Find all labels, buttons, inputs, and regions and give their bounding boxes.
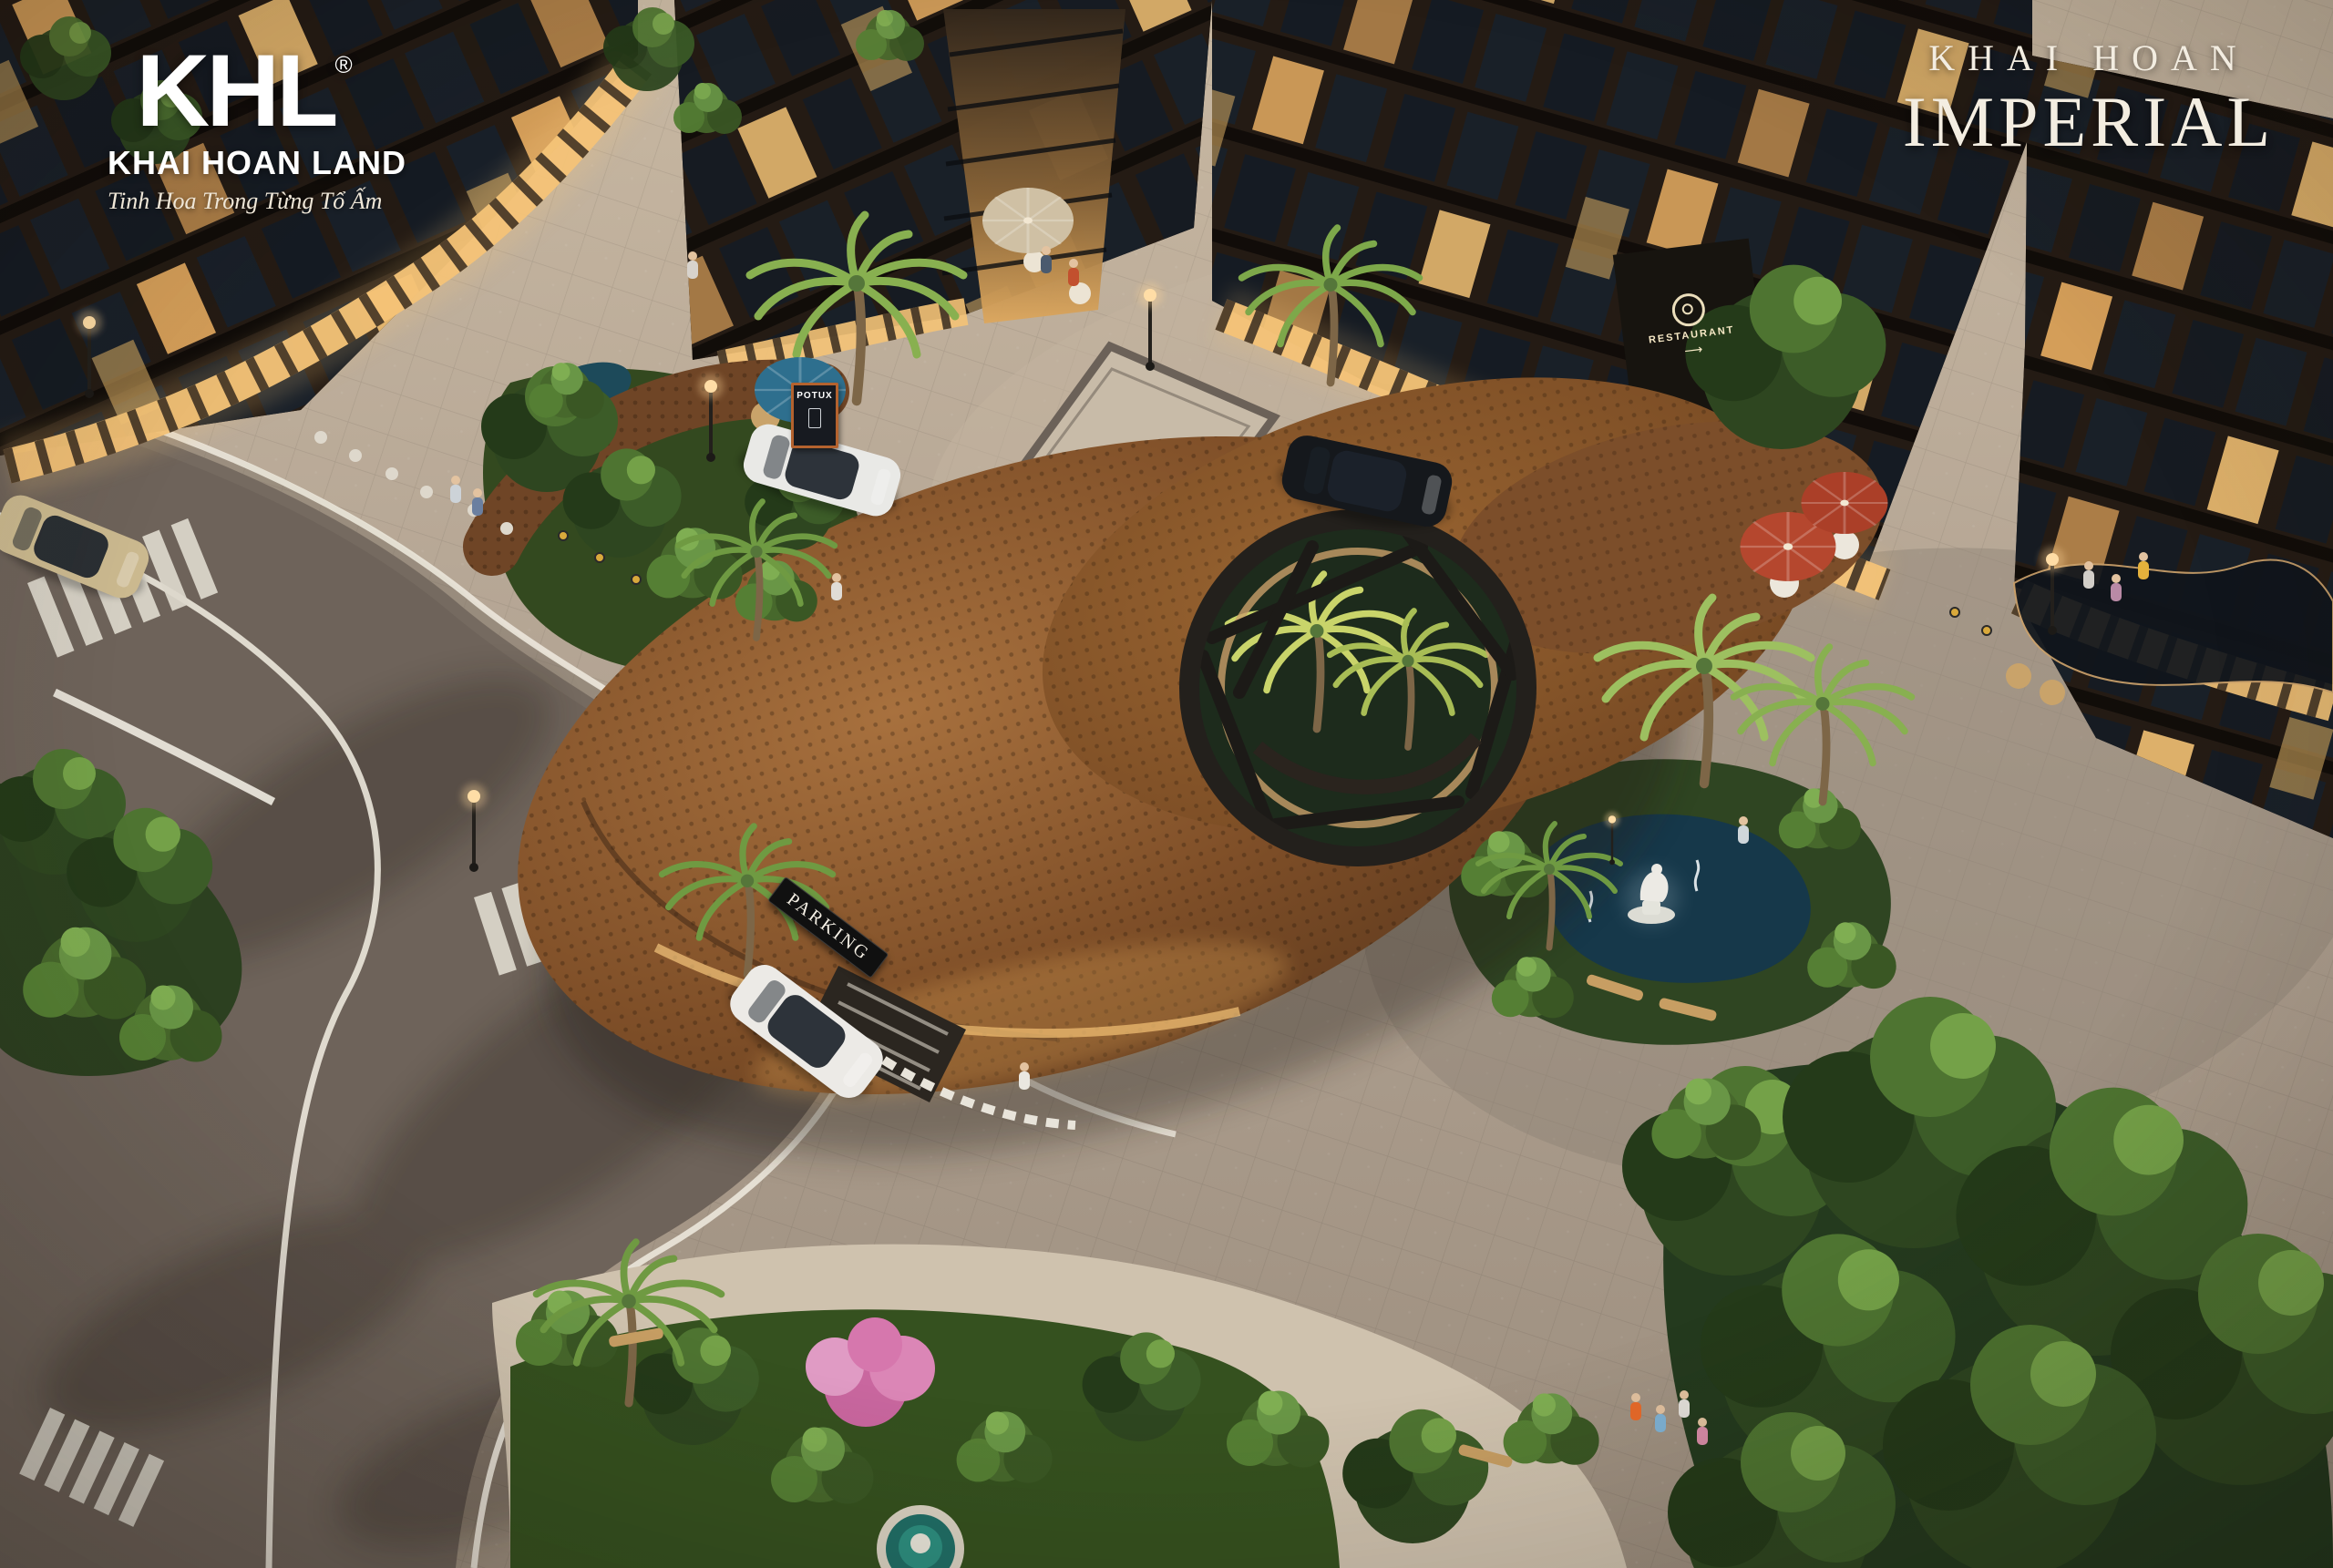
developer-logo: KHL® KHAI HOAN LAND Tinh Hoa Trong Từng … (108, 40, 381, 215)
developer-name: KHAI HOAN LAND (108, 144, 381, 182)
scene-rendering (0, 0, 2333, 1568)
project-name-line1: KHAI HOAN (1870, 36, 2307, 79)
cafe-menu-board: POTUX (791, 383, 838, 448)
logo-monogram: KHL® (108, 40, 381, 142)
aerial-render-dusk-plaza: KHL® KHAI HOAN LAND Tinh Hoa Trong Từng … (0, 0, 2333, 1568)
cafe-board-label: POTUX (794, 391, 836, 401)
vignette (0, 0, 2333, 1568)
restaurant-sign: RESTAURANT ⟶ (1637, 288, 1744, 364)
plate-icon (1670, 292, 1707, 328)
project-name-line2: IMPERIAL (1870, 81, 2307, 163)
project-name: KHAI HOAN IMPERIAL (1870, 36, 2307, 163)
menu-icon (808, 408, 821, 428)
registered-mark: ® (335, 51, 353, 78)
developer-tagline: Tinh Hoa Trong Từng Tổ Ấm (108, 188, 381, 215)
